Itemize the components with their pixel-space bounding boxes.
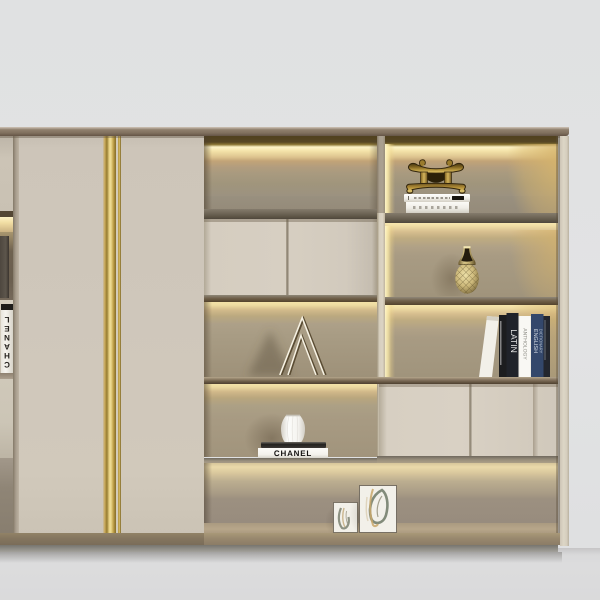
svg-text:DICTIONARY: DICTIONARY [538, 329, 543, 354]
svg-text:ENGLISH: ENGLISH [532, 329, 538, 353]
svg-text:LATIN: LATIN [509, 329, 519, 352]
svg-text:ANTHOLOGY: ANTHOLOGY [522, 328, 528, 360]
